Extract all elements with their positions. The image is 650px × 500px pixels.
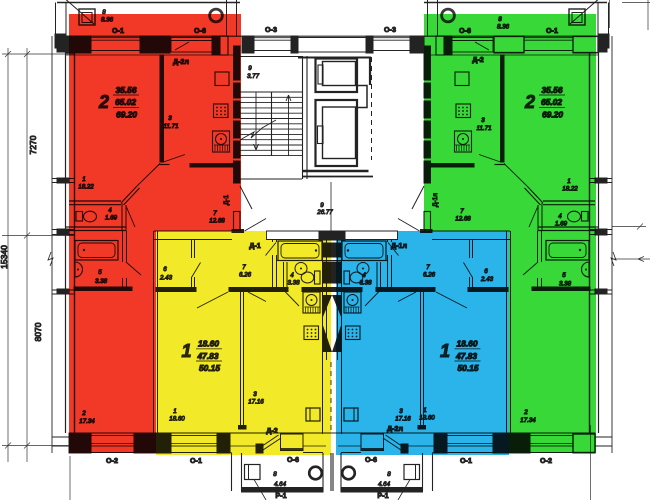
svg-text:О-6: О-6 (287, 455, 299, 464)
svg-text:8: 8 (387, 471, 391, 478)
svg-text:9: 9 (248, 65, 252, 72)
svg-text:Р-1: Р-1 (275, 491, 286, 500)
svg-text:7270: 7270 (28, 135, 38, 154)
svg-text:4.64: 4.64 (378, 481, 391, 488)
svg-text:О-1: О-1 (190, 456, 202, 465)
svg-text:26.77: 26.77 (316, 209, 333, 216)
svg-text:15340: 15340 (0, 245, 9, 269)
svg-text:О-2: О-2 (106, 456, 118, 465)
svg-text:О-1: О-1 (460, 456, 472, 465)
svg-text:4.64: 4.64 (274, 481, 287, 488)
svg-text:О-3: О-3 (265, 25, 277, 34)
svg-text:8070: 8070 (33, 322, 43, 341)
svg-text:3.77: 3.77 (247, 73, 260, 80)
svg-text:О-2: О-2 (540, 456, 552, 465)
svg-text:8: 8 (273, 471, 277, 478)
svg-text:9: 9 (320, 202, 324, 209)
svg-text:О-3: О-3 (384, 25, 396, 34)
svg-text:Р-1: Р-1 (377, 491, 388, 500)
svg-text:О-6: О-6 (365, 455, 377, 464)
